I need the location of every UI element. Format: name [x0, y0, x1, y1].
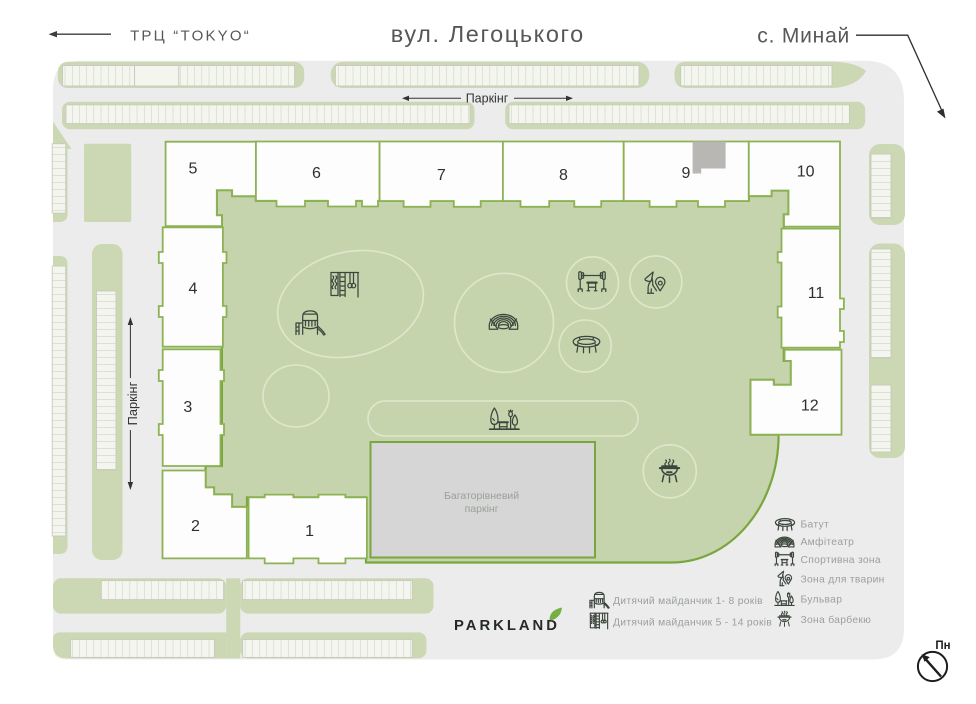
svg-text:3: 3: [183, 399, 192, 416]
svg-text:PARKLAND: PARKLAND: [454, 618, 560, 634]
svg-text:с. Минай: с. Минай: [757, 25, 850, 48]
svg-text:Спортивна зона: Спортивна зона: [801, 555, 881, 566]
svg-text:Паркінг: Паркінг: [466, 92, 509, 106]
svg-text:паркінг: паркінг: [465, 503, 499, 515]
svg-text:2: 2: [191, 518, 200, 535]
svg-text:7: 7: [437, 167, 446, 184]
svg-text:12: 12: [801, 398, 819, 415]
svg-text:Зона для тварин: Зона для тварин: [801, 574, 885, 585]
svg-text:Батут: Батут: [801, 519, 829, 530]
svg-text:Бульвар: Бульвар: [801, 594, 843, 605]
svg-text:11: 11: [808, 285, 825, 302]
svg-text:4: 4: [189, 281, 198, 298]
svg-text:5: 5: [189, 161, 198, 178]
svg-text:Пн: Пн: [935, 640, 950, 652]
svg-text:Дитячий майданчик 1- 8 років: Дитячий майданчик 1- 8 років: [613, 596, 763, 607]
svg-text:1: 1: [305, 523, 314, 540]
svg-text:6: 6: [312, 165, 321, 182]
svg-text:вул. Легоцького: вул. Легоцького: [391, 21, 585, 47]
svg-text:Багаторівневий: Багаторівневий: [444, 490, 519, 502]
svg-text:Дитячий майданчик 5 - 14 років: Дитячий майданчик 5 - 14 років: [613, 617, 772, 628]
svg-text:8: 8: [559, 167, 568, 184]
svg-text:ТРЦ “TOKYO“: ТРЦ “TOKYO“: [130, 28, 251, 45]
svg-text:10: 10: [797, 164, 815, 181]
svg-text:Зона барбекю: Зона барбекю: [801, 614, 872, 626]
svg-text:Паркінг: Паркінг: [125, 381, 140, 425]
svg-text:9: 9: [682, 165, 691, 182]
svg-text:Амфітеатр: Амфітеатр: [801, 536, 855, 548]
